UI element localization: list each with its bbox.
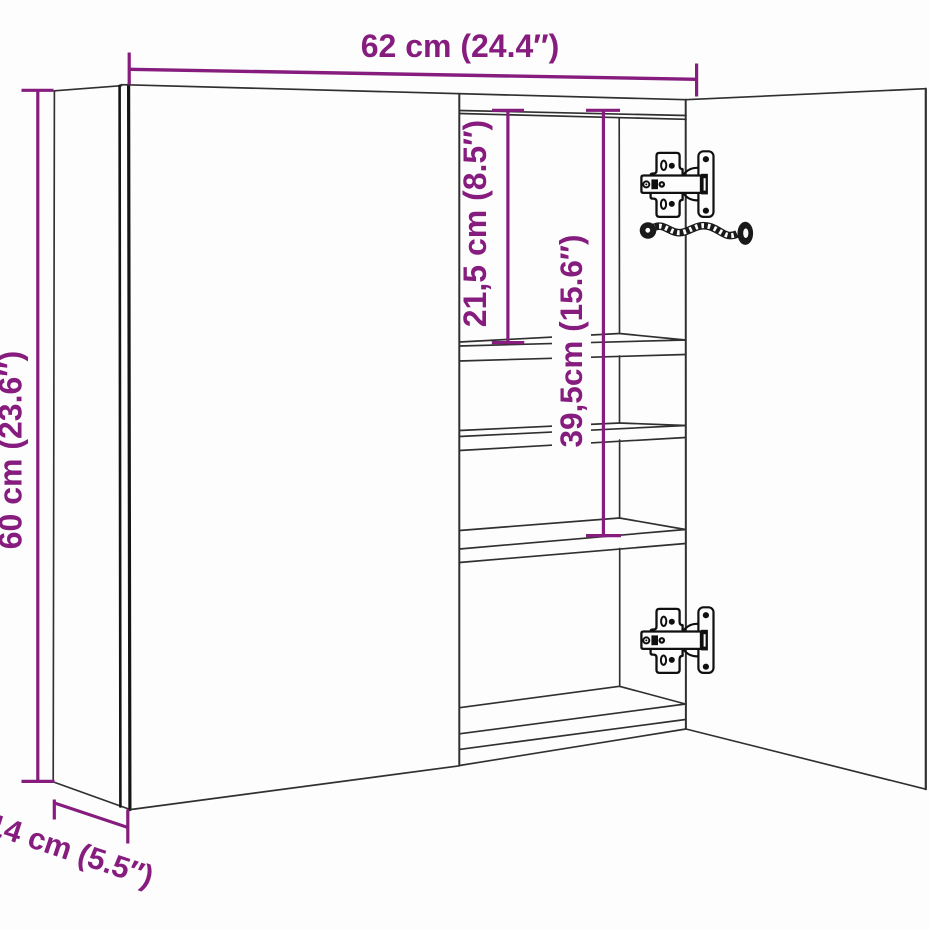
svg-text:62 cm (24.4″): 62 cm (24.4″) <box>361 28 560 64</box>
svg-text:39,5cm (15.6″): 39,5cm (15.6″) <box>553 235 589 448</box>
svg-text:60 cm (23.6″): 60 cm (23.6″) <box>0 351 29 550</box>
svg-text:21,5 cm (8.5″): 21,5 cm (8.5″) <box>457 120 493 327</box>
